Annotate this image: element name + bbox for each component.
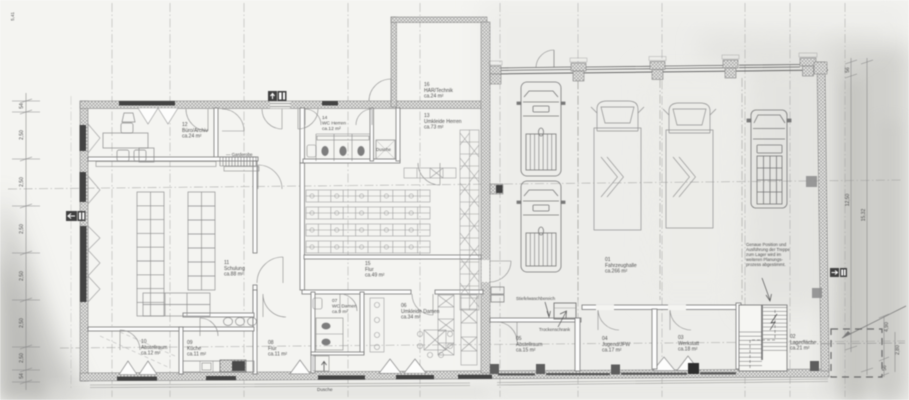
svg-text:2,50: 2,50 [19, 177, 25, 187]
svg-text:ca.15 m²: ca.15 m² [516, 348, 536, 354]
svg-text:2,80: 2,80 [895, 345, 901, 355]
svg-text:WC Herren: WC Herren [322, 121, 346, 127]
svg-text:ca.11 m²: ca.11 m² [187, 352, 206, 358]
svg-text:Dusche: Dusche [376, 147, 391, 152]
svg-text:Trockenschrank: Trockenschrank [539, 327, 571, 332]
svg-text:5,41: 5,41 [10, 12, 15, 21]
svg-text:ca.12 m²: ca.12 m² [141, 351, 161, 357]
svg-text:ca.17 m²: ca.17 m² [602, 348, 622, 354]
svg-text:56: 56 [845, 67, 851, 73]
svg-text:ca.11 m²: ca.11 m² [268, 352, 287, 358]
svg-text:ca.88 m²: ca.88 m² [224, 272, 244, 278]
svg-text:ca.24 m²: ca.24 m² [424, 94, 444, 100]
svg-text:2,50: 2,50 [19, 224, 25, 234]
svg-text:14: 14 [322, 115, 328, 121]
svg-text:ca.266 m²: ca.266 m² [605, 269, 628, 275]
svg-text:Stiefelwaschbereich: Stiefelwaschbereich [516, 296, 556, 301]
svg-text:2,50: 2,50 [19, 318, 25, 328]
svg-text:ca.49 m²: ca.49 m² [365, 273, 385, 279]
svg-text:ca.34 m²: ca.34 m² [401, 315, 421, 321]
svg-text:2,50: 2,50 [19, 353, 25, 363]
svg-text:WC Damen: WC Damen [332, 304, 357, 310]
svg-text:4,90: 4,90 [884, 322, 890, 332]
svg-text:56: 56 [882, 365, 888, 371]
svg-text:15,32: 15,32 [861, 209, 867, 222]
svg-text:ca.9 m²: ca.9 m² [332, 309, 348, 315]
svg-text:2,50: 2,50 [19, 271, 25, 281]
svg-text:ca.21 m²: ca.21 m² [790, 346, 810, 352]
svg-text:ca.12 m²: ca.12 m² [322, 126, 341, 132]
svg-text:ca.24 m²: ca.24 m² [182, 134, 202, 140]
svg-text:54: 54 [19, 373, 25, 379]
svg-text:prozess abgestimmt.: prozess abgestimmt. [746, 262, 786, 267]
svg-text:12,50: 12,50 [845, 194, 851, 207]
svg-text:07: 07 [332, 298, 338, 304]
svg-text:ca.73 m²: ca.73 m² [424, 125, 444, 131]
svg-text:54: 54 [19, 103, 25, 109]
svg-text:2,50: 2,50 [19, 130, 25, 140]
svg-text:— Garderobe: — Garderobe [226, 152, 253, 157]
svg-text:Dusche: Dusche [317, 387, 333, 392]
svg-text:ca.18 m²: ca.18 m² [678, 347, 698, 353]
